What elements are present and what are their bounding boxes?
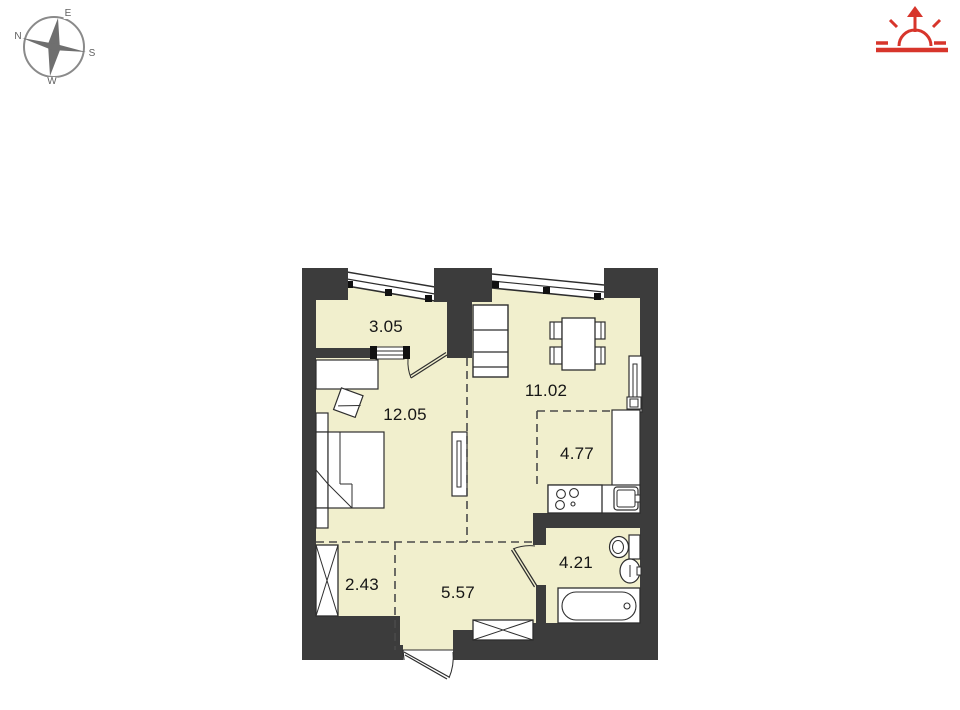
column-radiator <box>452 432 467 496</box>
stove <box>548 485 602 513</box>
entry-cabinet-crossed <box>473 620 533 640</box>
bedroom-loggia-window <box>370 346 410 359</box>
toilet <box>610 535 641 559</box>
wash-basin <box>620 559 641 583</box>
room-label-kitchen: 4.77 <box>560 444 594 464</box>
floor-plan-graphic <box>0 0 960 710</box>
room-label-bathroom: 4.21 <box>559 553 593 573</box>
desk <box>316 360 378 389</box>
room-label-living-room: 11.02 <box>525 381 567 401</box>
room-label-closet: 2.43 <box>345 575 379 595</box>
floor-plan-page: E S W N <box>0 0 960 710</box>
room-label-loggia: 3.05 <box>369 317 403 337</box>
kitchen-sink <box>614 487 640 510</box>
shelf-unit <box>473 305 508 377</box>
entry-door <box>403 650 453 679</box>
bathtub <box>558 588 640 623</box>
wardrobe-crossed <box>316 545 338 616</box>
room-label-hallway: 5.57 <box>441 583 475 603</box>
room-label-bedroom: 12.05 <box>383 405 427 425</box>
